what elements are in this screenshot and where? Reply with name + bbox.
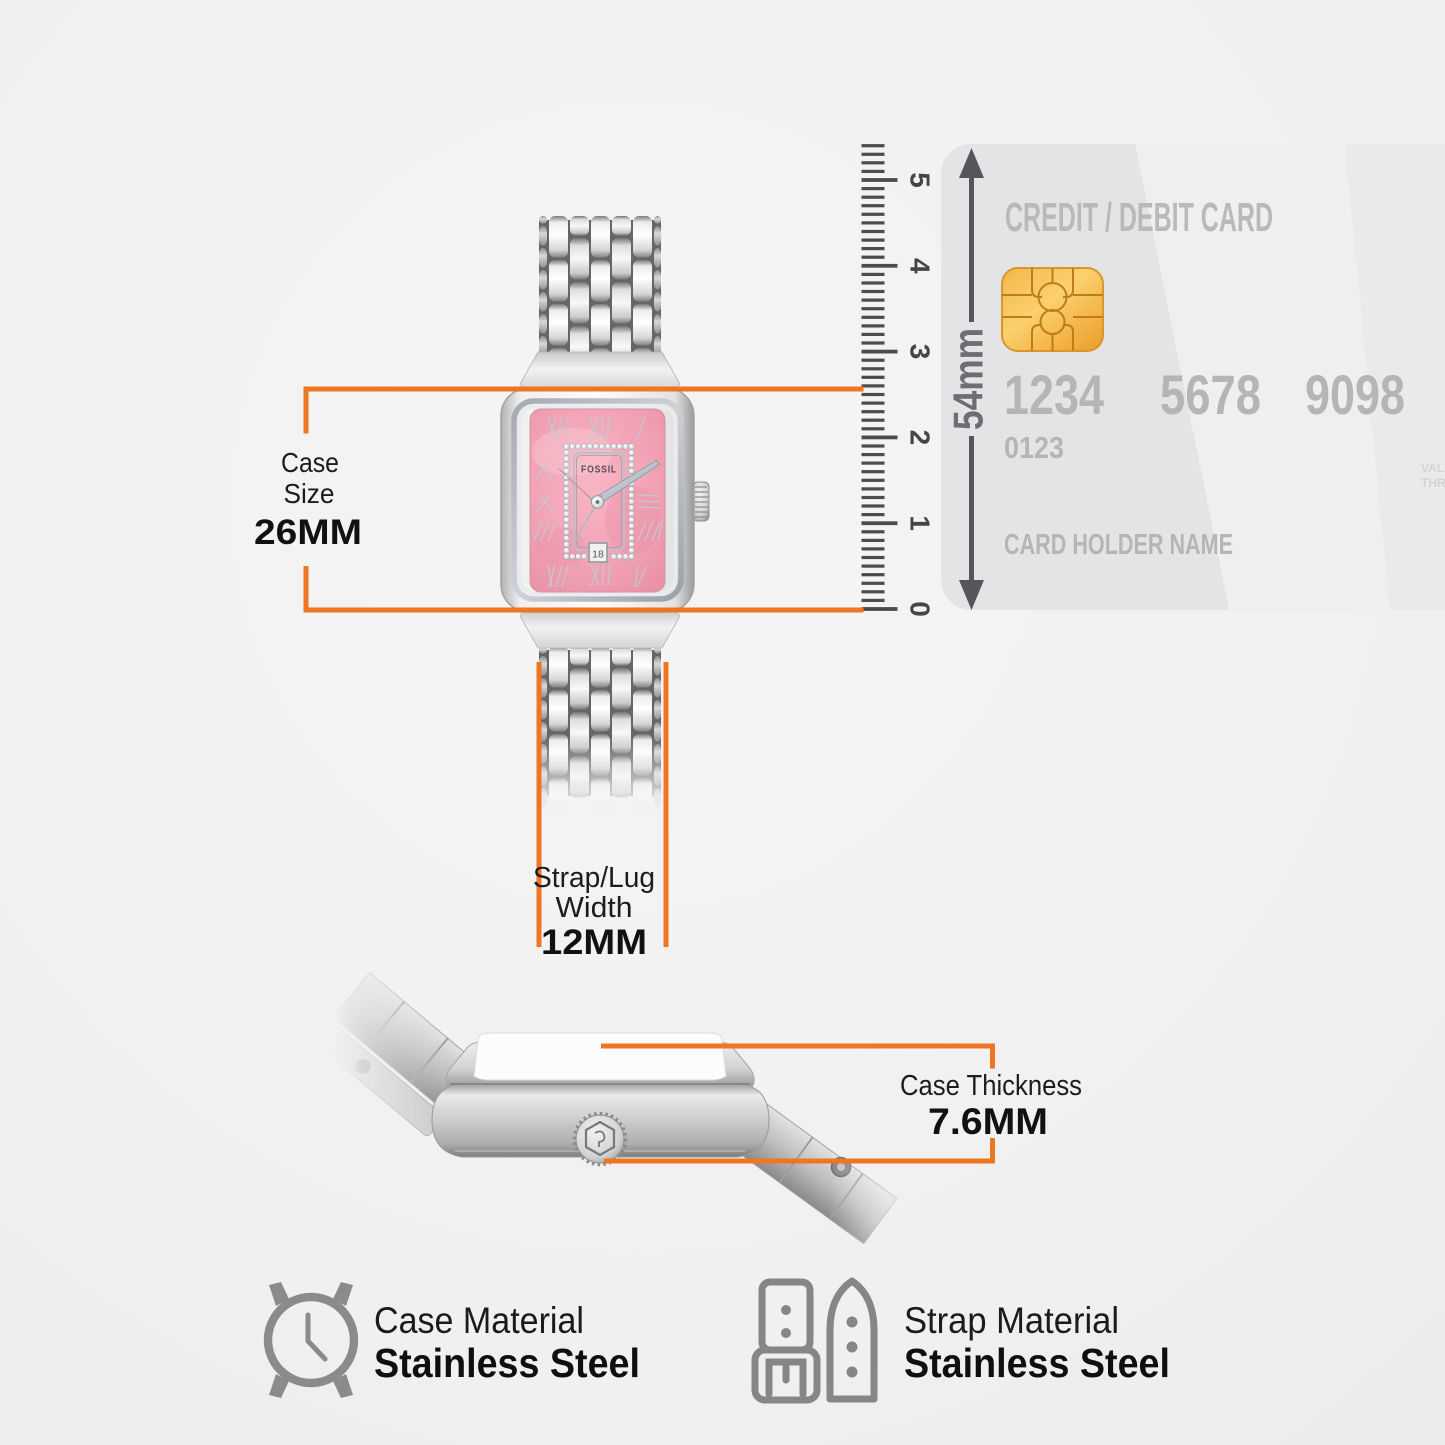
svg-text:0: 0 [905, 601, 936, 617]
svg-text:Size: Size [284, 478, 335, 509]
svg-text:9098: 9098 [1305, 363, 1405, 426]
svg-text:26MM: 26MM [254, 513, 362, 552]
svg-text:7.6MM: 7.6MM [928, 1101, 1048, 1142]
svg-text:Case Thickness: Case Thickness [900, 1070, 1082, 1102]
svg-text:Stainless Steel: Stainless Steel [904, 1340, 1170, 1386]
svg-text:2: 2 [905, 430, 936, 446]
svg-text:Stainless Steel: Stainless Steel [374, 1340, 640, 1386]
svg-text:3: 3 [905, 344, 936, 360]
svg-text:18: 18 [592, 549, 604, 561]
svg-text:CREDIT / DEBIT CARD: CREDIT / DEBIT CARD [1005, 194, 1273, 240]
svg-text:Case: Case [281, 447, 339, 478]
svg-text:5: 5 [905, 172, 936, 188]
svg-text:FOSSIL: FOSSIL [581, 464, 617, 476]
svg-text:Strap/Lug: Strap/Lug [533, 862, 655, 894]
svg-text:1234: 1234 [1004, 363, 1104, 426]
svg-text:Strap Material: Strap Material [904, 1300, 1119, 1341]
svg-text:0123: 0123 [1004, 430, 1064, 465]
svg-text:1: 1 [905, 515, 936, 531]
svg-text:Width: Width [556, 892, 633, 924]
svg-text:12MM: 12MM [541, 923, 647, 962]
svg-text:Case Material: Case Material [374, 1300, 584, 1341]
svg-text:VALID: VALID [1421, 461, 1445, 475]
svg-text:THRU: THRU [1421, 476, 1445, 490]
svg-text:4: 4 [905, 258, 936, 274]
svg-text:54mm: 54mm [945, 328, 992, 430]
svg-text:5678: 5678 [1160, 363, 1261, 426]
svg-text:CARD HOLDER NAME: CARD HOLDER NAME [1004, 529, 1233, 561]
